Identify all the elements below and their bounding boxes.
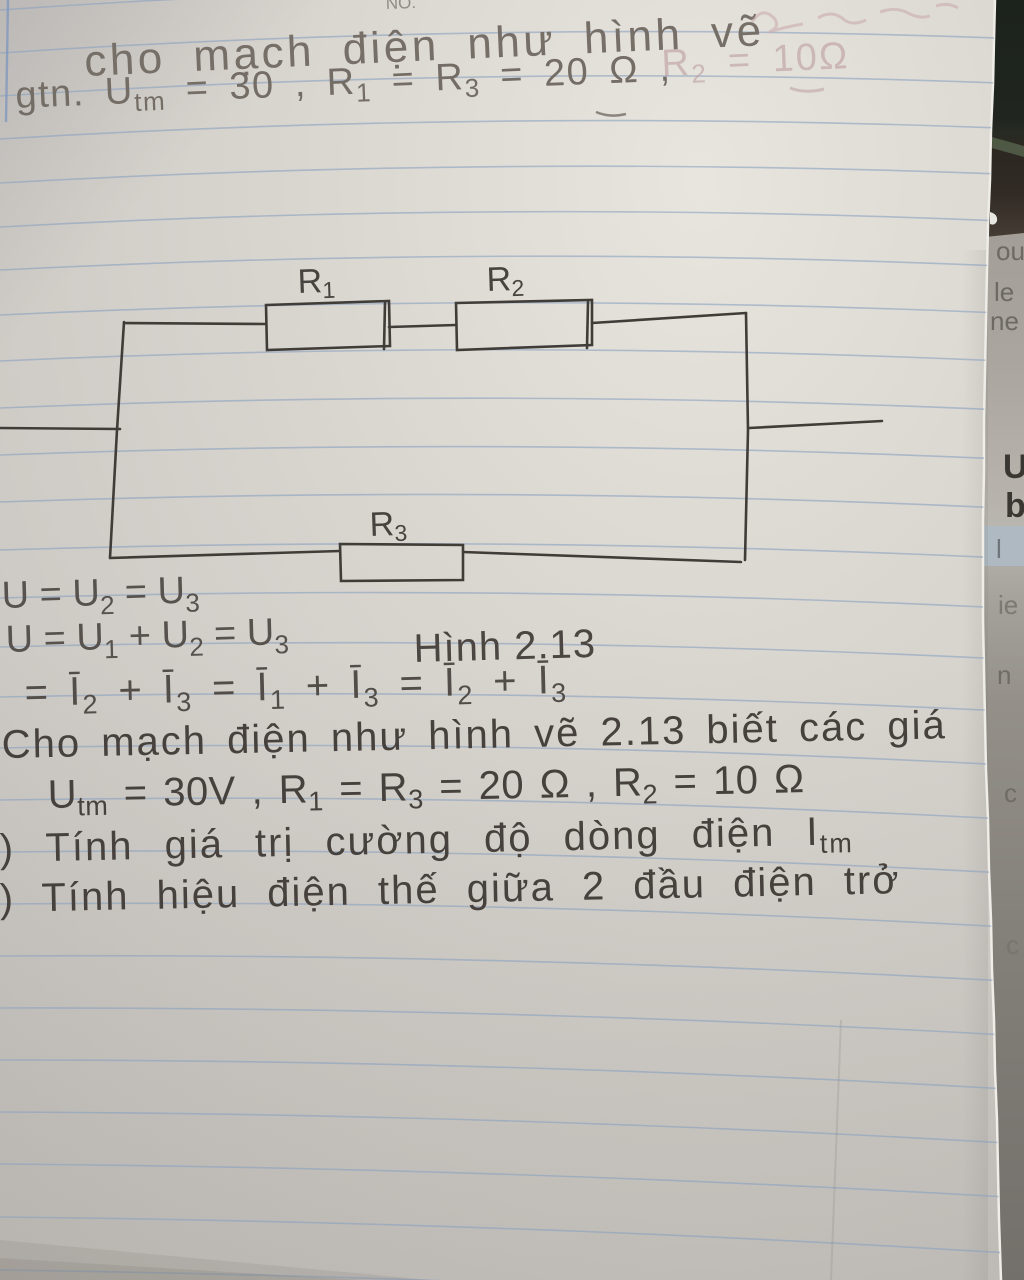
svg-text:b: b — [1005, 487, 1024, 525]
svg-text:NO.: NO. — [385, 0, 416, 13]
svg-text:ou: ou — [996, 236, 1024, 266]
svg-text:n: n — [997, 660, 1011, 690]
svg-text:ne: ne — [990, 306, 1019, 336]
svg-text:c: c — [1004, 778, 1017, 808]
svg-text:le: le — [994, 277, 1014, 307]
svg-text:U: U — [1003, 448, 1024, 486]
svg-text:l: l — [996, 534, 1002, 564]
svg-text:c: c — [1006, 930, 1019, 960]
svg-text:ie: ie — [998, 590, 1018, 620]
